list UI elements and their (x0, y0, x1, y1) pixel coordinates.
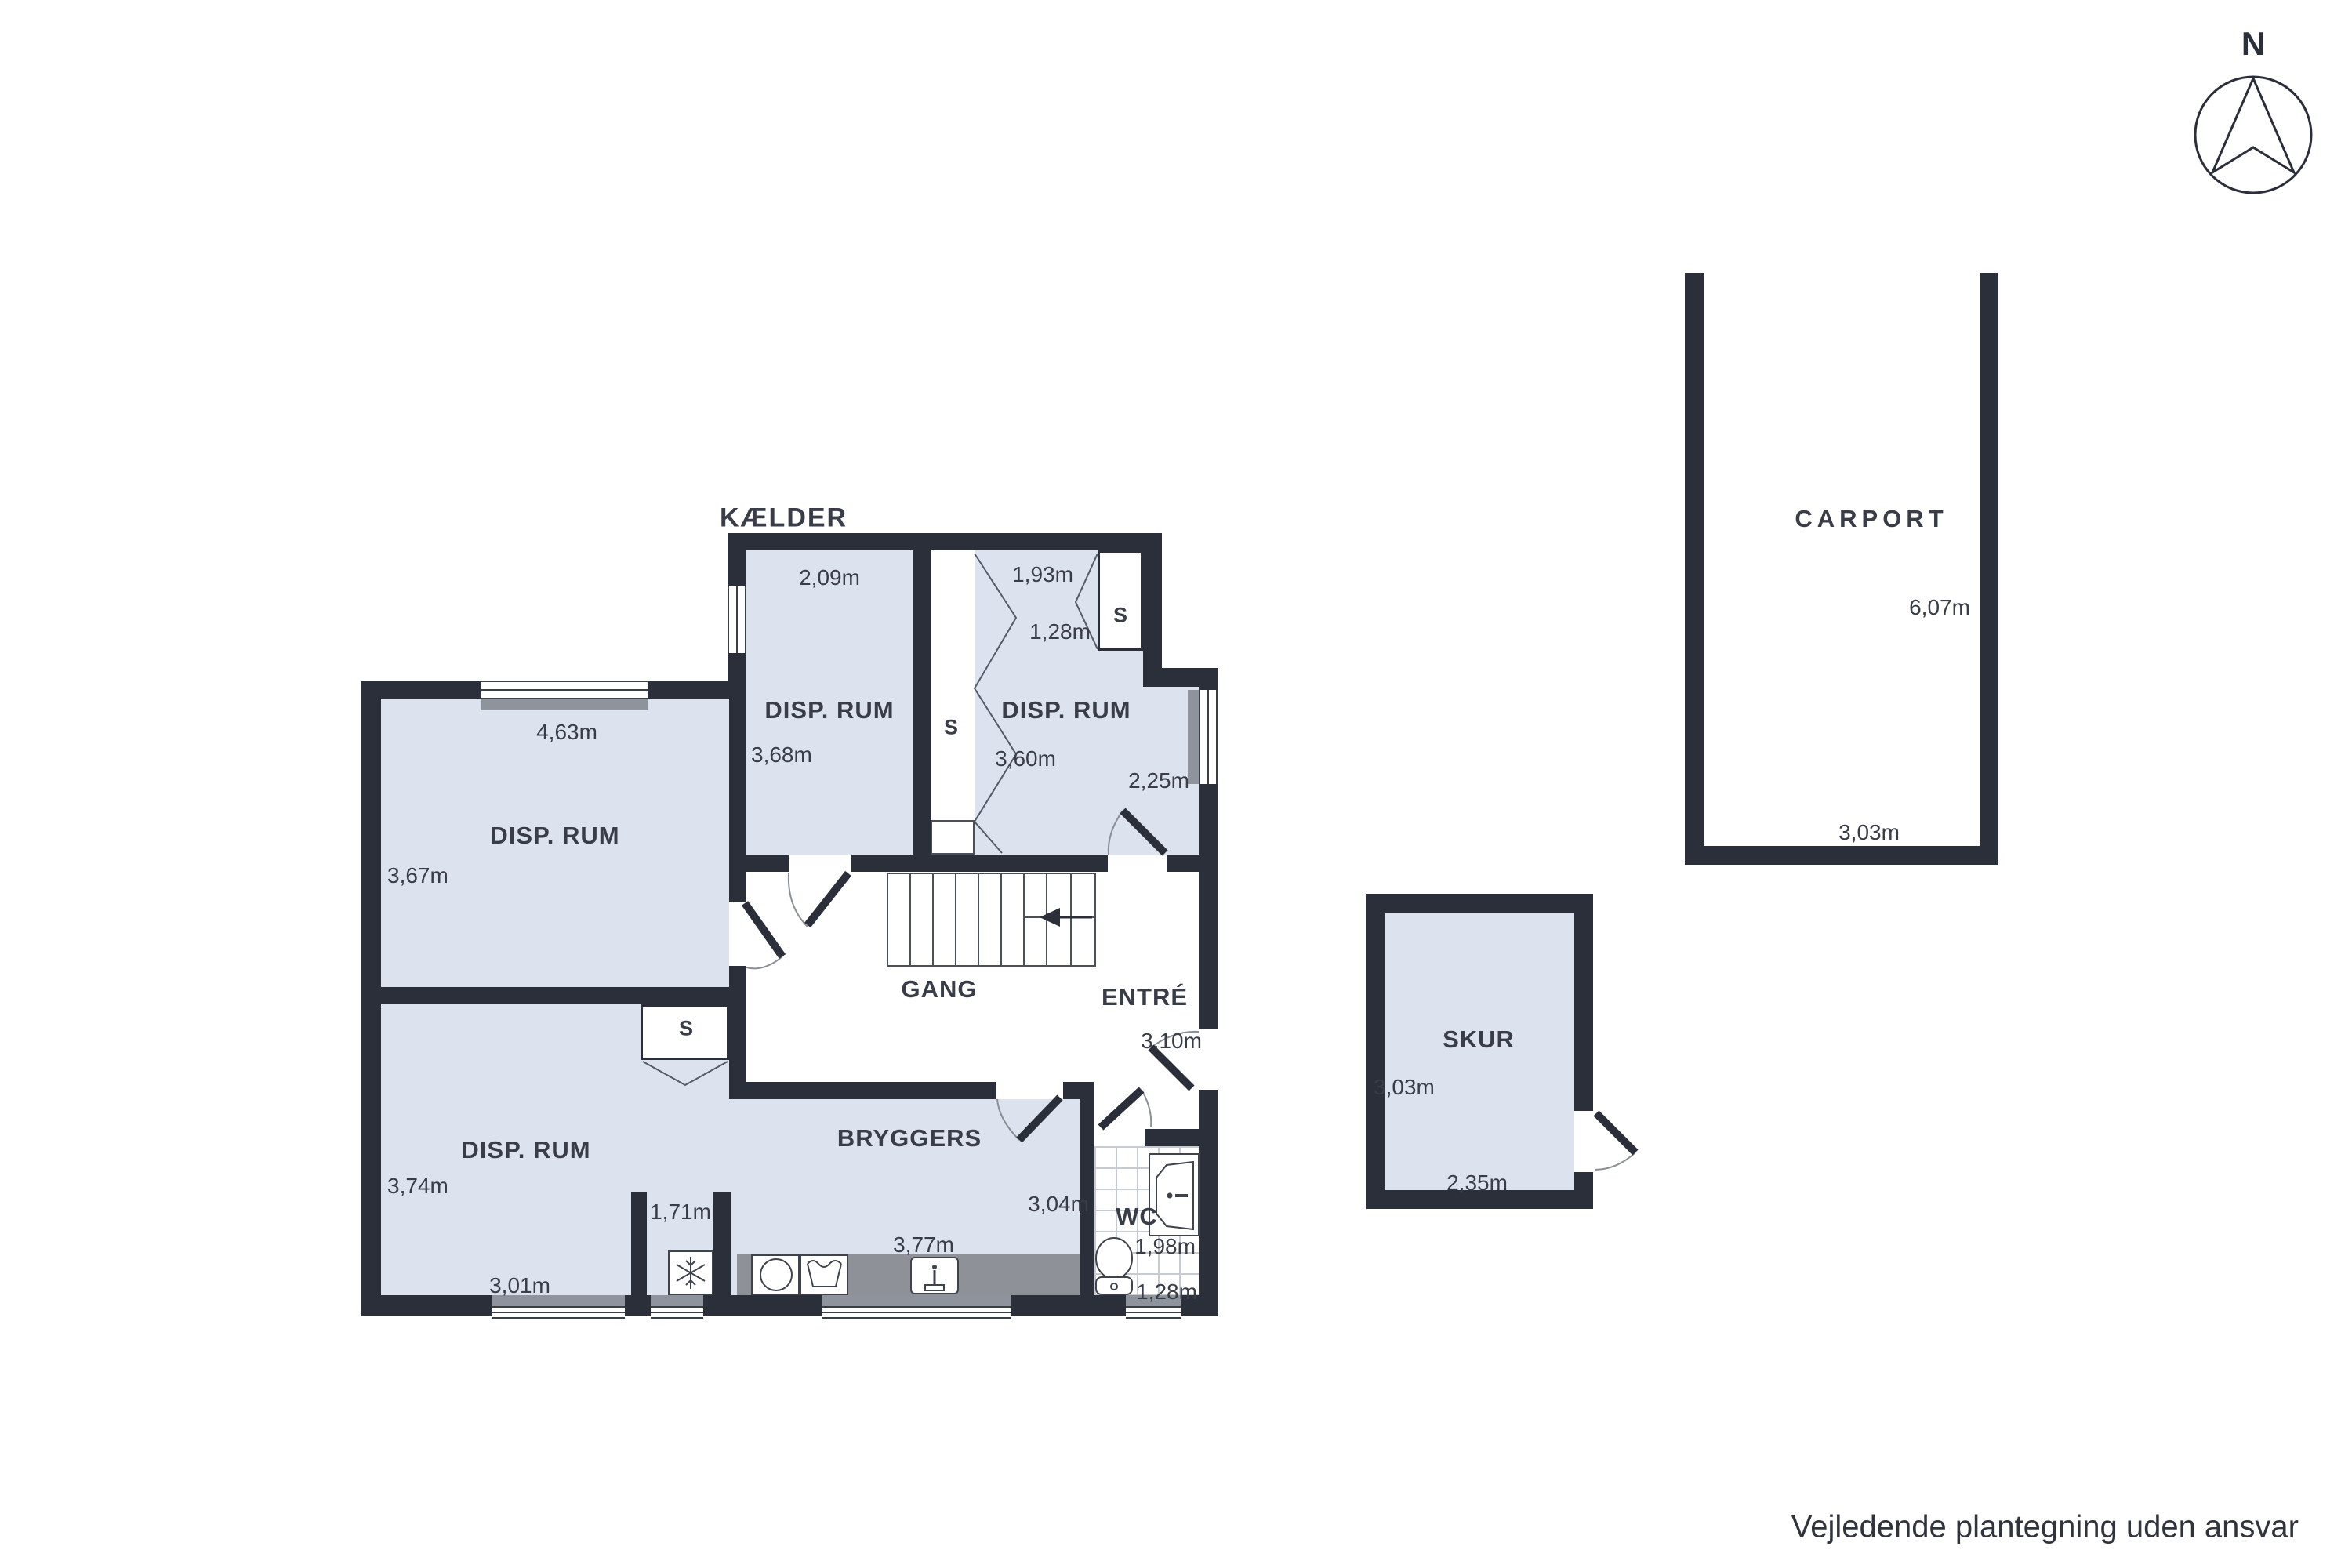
window (728, 586, 746, 653)
window (481, 681, 648, 699)
dim-label: 3,03m (1374, 1075, 1435, 1100)
wall (1145, 1129, 1199, 1146)
dim-label: 1,28m (1029, 619, 1091, 644)
wall (1366, 894, 1593, 913)
room-bryggers-label: BRYGGERS (837, 1124, 982, 1152)
laundry-tub-icon (800, 1254, 848, 1295)
closet-sw-label: S (679, 1017, 693, 1041)
dim-label: 3,60m (995, 746, 1056, 771)
window (1199, 690, 1218, 784)
wall (1199, 1090, 1218, 1316)
window (822, 1306, 1011, 1319)
dim-label: 3,04m (1028, 1192, 1089, 1217)
room-disp-rum-sw-label: DISP. RUM (461, 1136, 590, 1164)
room-wc-label: WC (1116, 1203, 1158, 1231)
stairs-direction-arrow (1040, 908, 1092, 927)
wall (1143, 533, 1162, 687)
freezer-icon (668, 1250, 713, 1295)
dim-label: 6,07m (1909, 595, 1970, 620)
room-entre-label: ENTRÉ (1102, 983, 1188, 1011)
room-disp-rum-ne-label: DISP. RUM (1001, 696, 1131, 724)
washing-machine-icon (751, 1254, 800, 1295)
wall (1980, 273, 1998, 865)
dim-label: 1,93m (1012, 562, 1073, 587)
wall (728, 533, 1162, 550)
wall (713, 1192, 731, 1295)
wall (1685, 846, 1998, 865)
stair-closet-label: S (944, 716, 958, 740)
dim-label: 1,98m (1134, 1234, 1196, 1259)
dim-label: 3,74m (387, 1174, 448, 1199)
wall (1080, 1082, 1094, 1295)
window (1126, 1306, 1181, 1319)
window-sill (481, 699, 648, 710)
compass-n-label: N (2241, 25, 2265, 63)
wall (1574, 894, 1593, 1111)
room-carport-label: CARPORT (1795, 505, 1947, 533)
window-sill (822, 1295, 1011, 1306)
wall (746, 1082, 996, 1099)
dim-label: 2,35m (1446, 1171, 1508, 1196)
floor-plan-canvas: KÆLDER DISP. RUM 4,63m 3,67m DISP. RUM 2… (0, 0, 2352, 1568)
plan-title: KÆLDER (720, 503, 848, 534)
dim-label: 3,68m (751, 742, 812, 768)
dim-label: 1,71m (650, 1200, 711, 1225)
compass-icon (2195, 77, 2311, 193)
wall (851, 855, 1108, 872)
wall (1167, 855, 1199, 872)
dim-label: 2,25m (1128, 768, 1189, 793)
closet-ne-label: S (1113, 604, 1127, 628)
wall (729, 966, 746, 1099)
room-disp-rum-nw-label: DISP. RUM (490, 822, 619, 850)
window (651, 1306, 703, 1319)
closet-ne (1098, 550, 1143, 651)
stairs (887, 873, 1095, 966)
dim-label: 1,28m (1136, 1279, 1197, 1305)
room-gang-label: GANG (902, 975, 978, 1004)
dim-label: 2,09m (799, 565, 860, 590)
wall (1366, 894, 1385, 1209)
dim-label: 3,77m (893, 1232, 954, 1258)
room-disp-rum-n-label: DISP. RUM (764, 696, 894, 724)
dim-label: 3,01m (489, 1273, 550, 1298)
wall (381, 987, 746, 1004)
dim-label: 3,10m (1141, 1029, 1202, 1054)
window-sill (651, 1295, 703, 1306)
window-sill (1188, 690, 1199, 784)
wall (913, 550, 931, 855)
wall (729, 699, 746, 902)
disclaimer-text: Vejledende plantegning uden ansvar (1791, 1510, 2299, 1545)
wall (746, 855, 789, 872)
wall (361, 681, 381, 1316)
dim-label: 3,03m (1838, 820, 1900, 845)
dim-label: 4,63m (536, 720, 597, 745)
wall (1685, 273, 1704, 865)
stair-landing (931, 820, 975, 855)
room-skur-label: SKUR (1443, 1025, 1515, 1054)
window (492, 1306, 625, 1319)
wall (631, 1192, 647, 1295)
dim-label: 3,67m (387, 863, 448, 888)
